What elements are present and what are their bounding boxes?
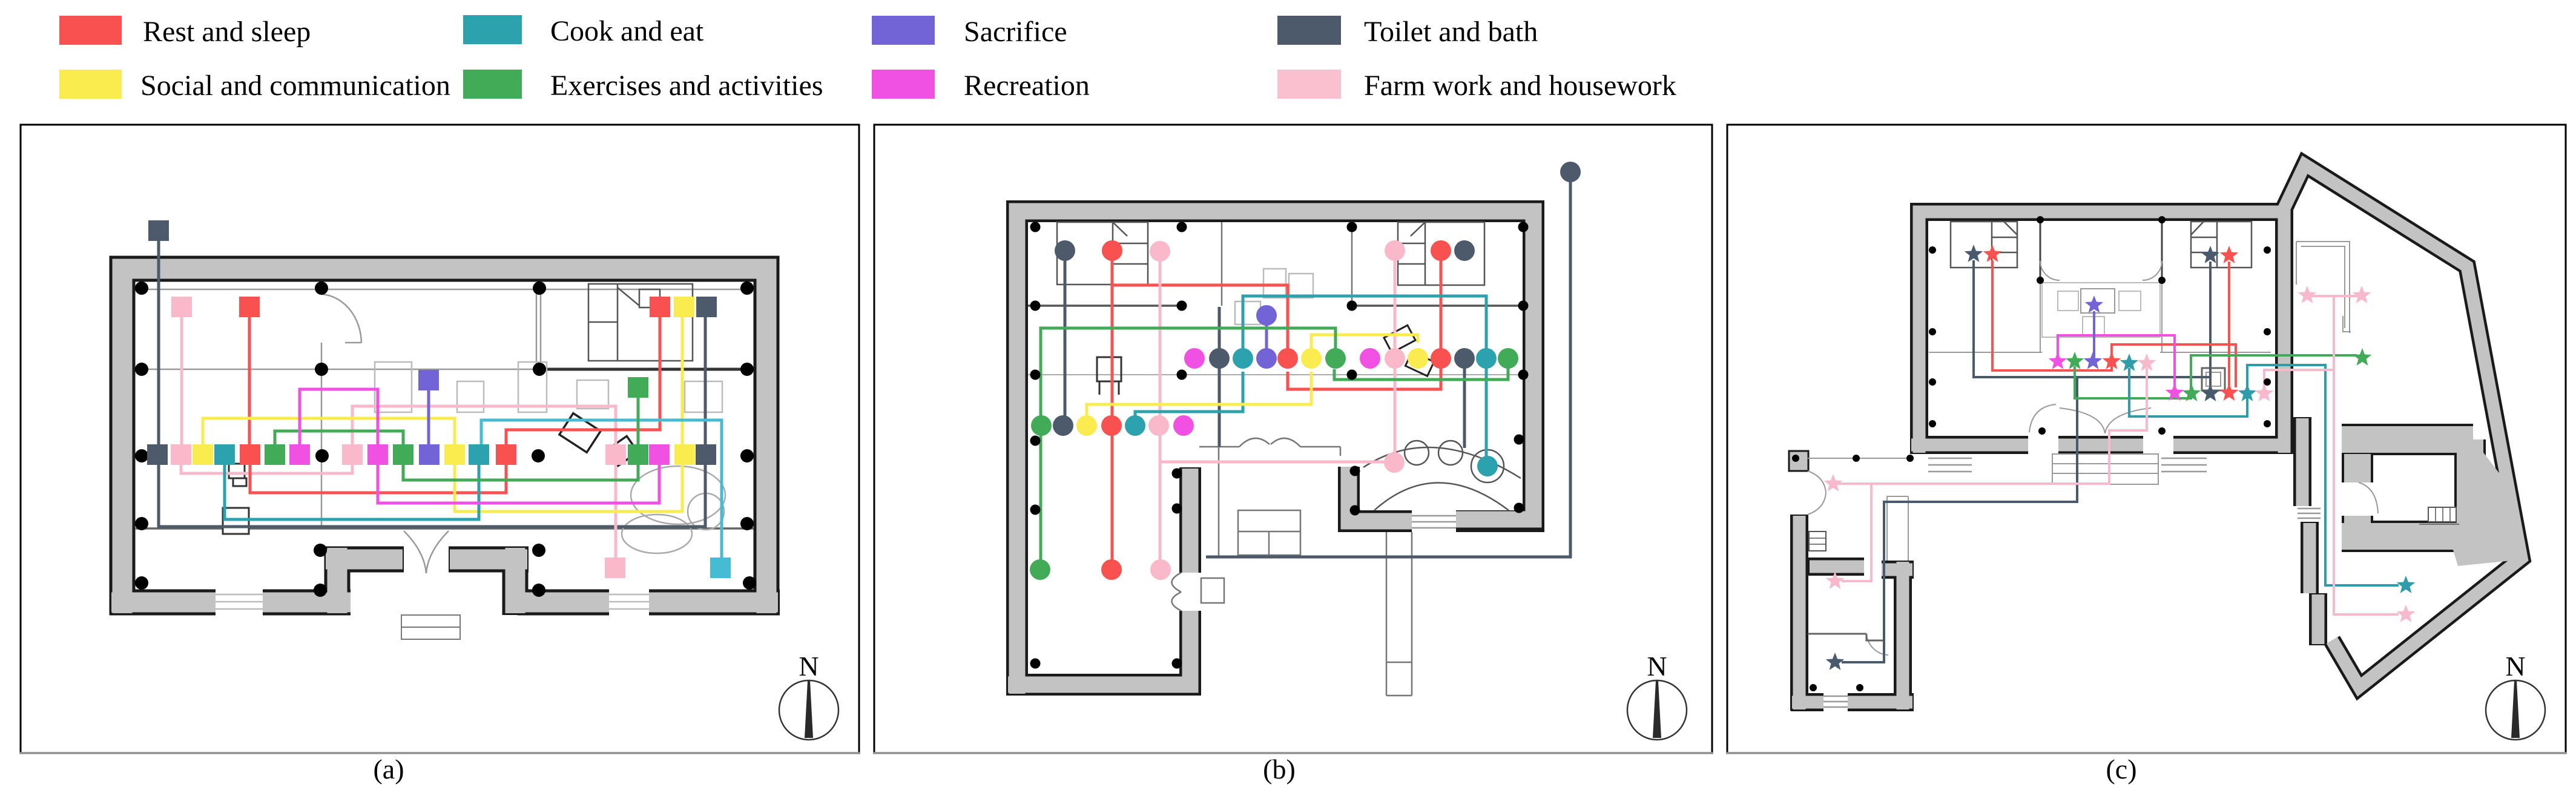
svg-text:N: N	[1647, 651, 1667, 682]
svg-text:Sacrifice: Sacrifice	[964, 16, 1067, 48]
svg-text:Exercises and activities: Exercises and activities	[550, 70, 823, 102]
svg-text:N: N	[799, 651, 819, 682]
svg-text:N: N	[2505, 651, 2525, 682]
svg-text:Rest and sleep: Rest and sleep	[143, 16, 311, 48]
svg-text:Toilet and bath: Toilet and bath	[1364, 16, 1538, 48]
svg-text:(b): (b)	[1263, 754, 1296, 785]
svg-text:Farm work and housework: Farm work and housework	[1364, 70, 1676, 102]
svg-text:Social and communication: Social and communication	[140, 70, 450, 102]
svg-text:(a): (a)	[373, 754, 404, 785]
svg-text:(c): (c)	[2106, 754, 2136, 785]
svg-text:Cook and eat: Cook and eat	[550, 15, 704, 47]
svg-text:Recreation: Recreation	[964, 70, 1090, 102]
